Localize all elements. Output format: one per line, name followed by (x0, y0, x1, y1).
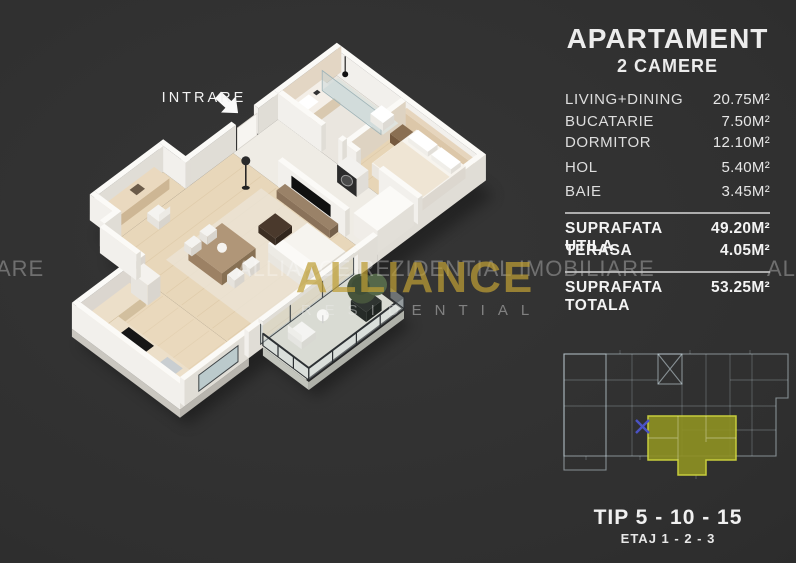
terrace-value: 4.05M² (720, 242, 770, 260)
room-area: 5.40M² (722, 159, 771, 176)
room-label: BAIE (565, 183, 602, 200)
floor-line: ETAJ 1 - 2 - 3 (540, 531, 796, 546)
room-row: DORMITOR 12.10M² (565, 134, 770, 156)
room-area: 7.50M² (722, 113, 771, 130)
terrace-label: TERASA (565, 242, 632, 260)
total-area-label: SUPRAFATA TOTALA (565, 279, 711, 315)
room-row: BAIE 3.45M² (565, 183, 770, 205)
entrance-label: INTRARE (139, 90, 269, 106)
building-floor-plan (540, 342, 796, 482)
total-area-value: 53.25M² (711, 279, 770, 297)
total-area-row: SUPRAFATA TOTALA 53.25M² (565, 279, 770, 301)
unit-x-marker (636, 420, 649, 433)
apartment-presentation: INTRARE ARE ALLIANCE REZIDENTIAL IMOBILI… (0, 0, 796, 563)
room-label: BUCATARIE (565, 113, 654, 130)
useful-area-row: SUPRAFATA UTILA 49.20M² (565, 220, 770, 242)
room-row: HOL 5.40M² (565, 159, 770, 181)
page-subtitle: 2 CAMERE (565, 56, 770, 76)
type-line: TIP 5 - 10 - 15 (540, 506, 796, 530)
room-label: DORMITOR (565, 134, 651, 151)
room-area: 3.45M² (722, 183, 771, 200)
divider (565, 271, 770, 273)
page-title: APARTAMENT (565, 24, 770, 54)
room-label: LIVING+DINING (565, 91, 683, 108)
useful-area-value: 49.20M² (711, 220, 770, 238)
room-area-list: LIVING+DINING 20.75M² BUCATARIE 7.50M² D… (565, 91, 770, 205)
highlighted-unit (648, 416, 736, 475)
room-label: HOL (565, 159, 598, 176)
room-area: 20.75M² (713, 91, 770, 108)
room-row: BUCATARIE 7.50M² (565, 113, 770, 135)
divider (565, 212, 770, 214)
room-area: 12.10M² (713, 134, 770, 151)
room-row: LIVING+DINING 20.75M² (565, 91, 770, 113)
